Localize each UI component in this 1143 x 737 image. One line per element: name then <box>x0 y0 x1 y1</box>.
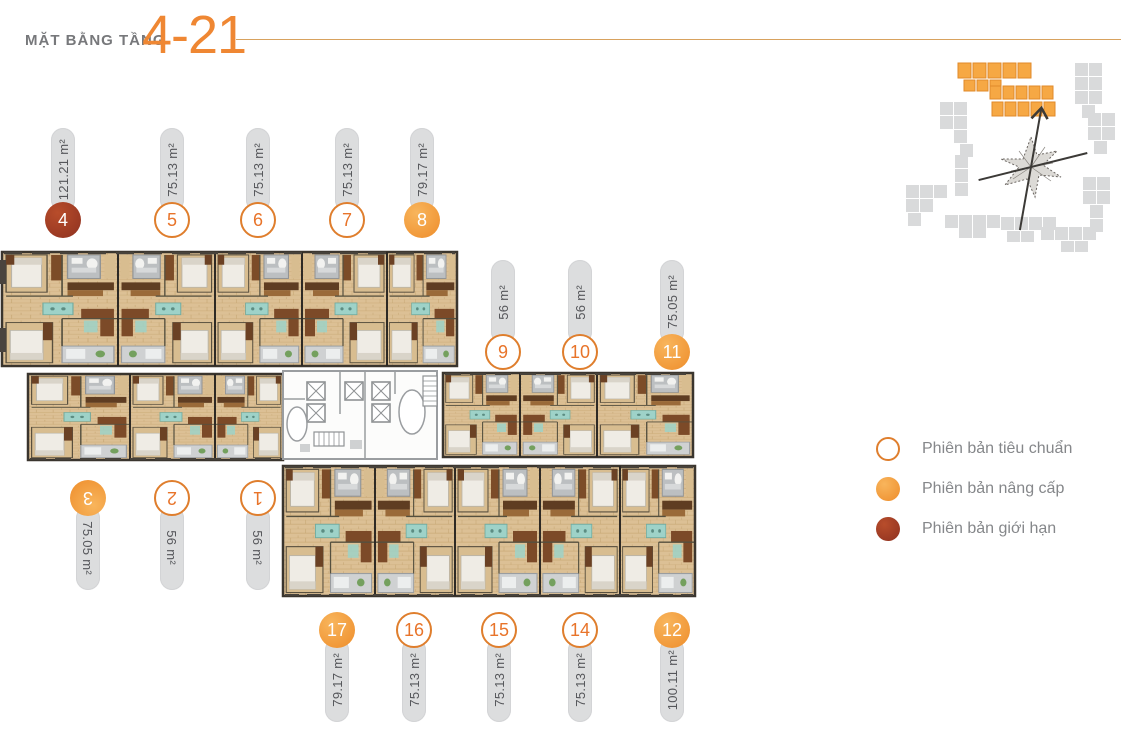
unit-number-badge[interactable]: 7 <box>329 202 365 238</box>
unit-label-9: 56 m² 9 <box>485 260 521 370</box>
site-map <box>898 55 1143 265</box>
unit-label-12: 100.11 m² 12 <box>654 612 690 722</box>
unit-area-pill: 56 m² <box>246 506 270 590</box>
unit-area-pill: 75.05 m² <box>660 260 684 344</box>
unit-area: 121.21 m² <box>56 139 71 200</box>
unit-number: 5 <box>167 210 177 231</box>
unit-label-14: 75.13 m² 14 <box>562 612 598 722</box>
unit-number-badge[interactable]: 6 <box>240 202 276 238</box>
unit-area: 56 m² <box>496 285 511 320</box>
legend-label: Phiên bản giới hạn <box>922 520 1056 538</box>
unit-area-pill: 56 m² <box>160 506 184 590</box>
unit-label-16: 75.13 m² 16 <box>396 612 432 722</box>
unit-area-pill: 75.13 m² <box>402 638 426 722</box>
legend-label: Phiên bản nâng cấp <box>922 480 1064 498</box>
unit-area-pill: 121.21 m² <box>51 128 75 212</box>
page-title-floor-range: 4-21 <box>142 8 246 62</box>
unit-number-badge[interactable]: 2 <box>154 480 190 516</box>
unit-area: 100.11 m² <box>665 650 680 710</box>
unit-area-pill: 75.13 m² <box>487 638 511 722</box>
unit-label-8: 79.17 m² 8 <box>404 128 440 238</box>
unit-area: 79.17 m² <box>415 143 430 197</box>
title-rule <box>236 39 1121 40</box>
unit-number: 12 <box>662 620 682 641</box>
plan-top-wing <box>0 252 457 366</box>
unit-number-badge[interactable]: 12 <box>654 612 690 648</box>
unit-area: 75.13 m² <box>492 653 507 707</box>
unit-number: 16 <box>404 620 424 641</box>
unit-area: 75.05 m² <box>665 275 680 329</box>
unit-number-badge[interactable]: 15 <box>481 612 517 648</box>
unit-number-badge[interactable]: 5 <box>154 202 190 238</box>
plan-left-wing <box>28 374 283 460</box>
unit-area: 75.13 m² <box>407 653 422 707</box>
legend-variant-dot-icon <box>876 517 900 541</box>
unit-label-4: 121.21 m² 4 <box>45 128 81 238</box>
unit-number-badge[interactable]: 9 <box>485 334 521 370</box>
unit-number-badge[interactable]: 16 <box>396 612 432 648</box>
unit-area-pill: 79.17 m² <box>410 128 434 212</box>
legend-variant-dot-icon <box>876 477 900 501</box>
unit-number: 14 <box>570 620 590 641</box>
unit-area: 75.13 m² <box>251 143 266 197</box>
unit-number-badge[interactable]: 3 <box>70 480 106 516</box>
unit-area-pill: 75.13 m² <box>246 128 270 212</box>
unit-area-pill: 56 m² <box>568 260 592 344</box>
unit-area: 75.13 m² <box>340 143 355 197</box>
unit-label-5: 75.13 m² 5 <box>154 128 190 238</box>
unit-area-pill: 56 m² <box>491 260 515 344</box>
unit-number: 1 <box>253 488 263 509</box>
unit-area-pill: 75.13 m² <box>335 128 359 212</box>
unit-number-badge[interactable]: 17 <box>319 612 355 648</box>
unit-number: 11 <box>663 342 682 363</box>
unit-number-badge[interactable]: 10 <box>562 334 598 370</box>
unit-area: 75.05 m² <box>81 521 96 575</box>
unit-area-pill: 79.17 m² <box>325 638 349 722</box>
floor-plan-page: MẶT BẰNG TẦNG 4-21 <box>0 0 1143 737</box>
legend: Phiên bản tiêu chuẩn Phiên bản nâng cấp … <box>876 437 1072 541</box>
unit-area-pill: 100.11 m² <box>660 638 684 722</box>
plan-right-wing <box>443 373 693 457</box>
unit-label-6: 75.13 m² 6 <box>240 128 276 238</box>
unit-number: 7 <box>342 210 352 231</box>
unit-area: 56 m² <box>165 531 180 566</box>
unit-label-3: 75.05 m² 3 <box>70 480 106 590</box>
unit-number-badge[interactable]: 11 <box>654 334 690 370</box>
unit-number-badge[interactable]: 14 <box>562 612 598 648</box>
unit-number: 6 <box>253 210 263 231</box>
legend-variant-dot-icon <box>876 437 900 461</box>
legend-label: Phiên bản tiêu chuẩn <box>922 440 1072 458</box>
unit-number-badge[interactable]: 8 <box>404 202 440 238</box>
legend-row: Phiên bản nâng cấp <box>876 477 1072 501</box>
unit-label-2: 56 m² 2 <box>154 480 190 590</box>
unit-label-1: 56 m² 1 <box>240 480 276 590</box>
unit-label-11: 75.05 m² 11 <box>654 260 690 370</box>
unit-number: 9 <box>498 342 508 363</box>
unit-number: 8 <box>417 210 427 231</box>
unit-label-10: 56 m² 10 <box>562 260 598 370</box>
compass-icon <box>979 107 1088 232</box>
unit-area-pill: 75.05 m² <box>76 506 100 590</box>
legend-row: Phiên bản tiêu chuẩn <box>876 437 1072 461</box>
unit-area: 75.13 m² <box>573 653 588 707</box>
unit-area: 75.13 m² <box>165 143 180 197</box>
plan-core <box>283 371 437 459</box>
unit-number-badge[interactable]: 1 <box>240 480 276 516</box>
unit-area: 79.17 m² <box>330 653 345 707</box>
unit-area-pill: 75.13 m² <box>568 638 592 722</box>
unit-area-pill: 75.13 m² <box>160 128 184 212</box>
unit-number: 15 <box>489 620 509 641</box>
unit-area: 56 m² <box>251 531 266 566</box>
unit-number-badge[interactable]: 4 <box>45 202 81 238</box>
legend-row: Phiên bản giới hạn <box>876 517 1072 541</box>
unit-number: 2 <box>167 488 177 509</box>
unit-label-7: 75.13 m² 7 <box>329 128 365 238</box>
plan-bottom-wing <box>283 466 695 596</box>
unit-label-17: 79.17 m² 17 <box>319 612 355 722</box>
unit-number: 4 <box>58 210 68 231</box>
unit-number: 3 <box>83 488 93 509</box>
unit-area: 56 m² <box>573 285 588 320</box>
unit-number: 10 <box>570 342 590 363</box>
unit-label-15: 75.13 m² 15 <box>481 612 517 722</box>
unit-number: 17 <box>327 620 347 641</box>
